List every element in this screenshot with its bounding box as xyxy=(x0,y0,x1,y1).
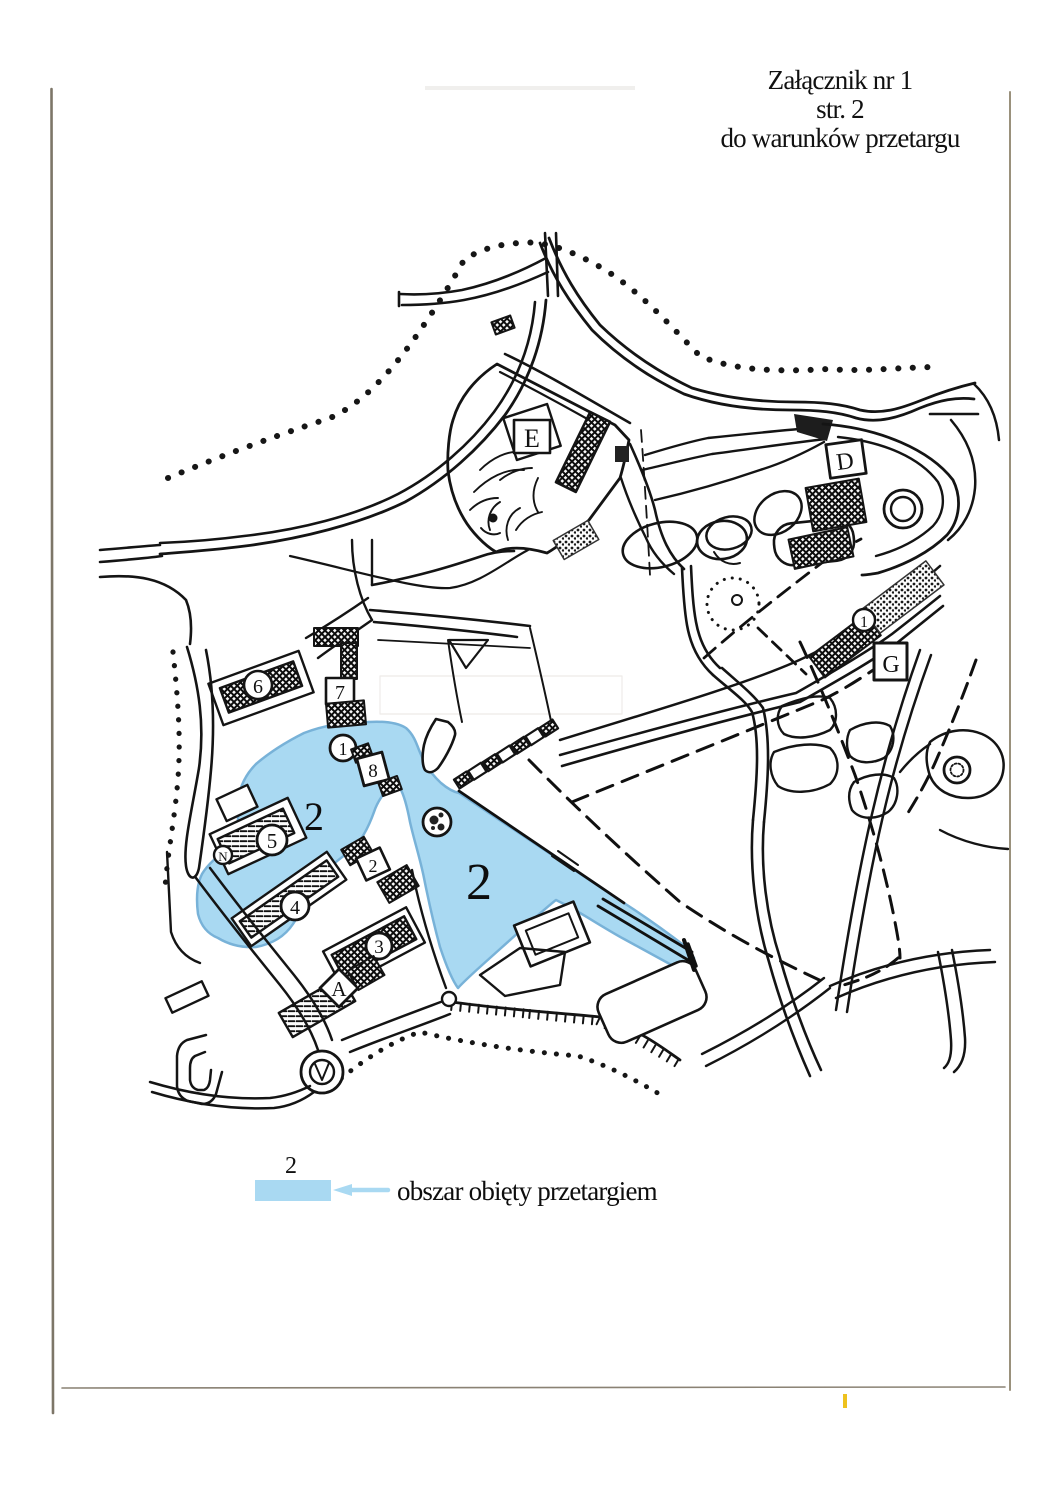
svg-text:G: G xyxy=(882,652,899,678)
svg-text:1: 1 xyxy=(860,614,868,631)
svg-text:4: 4 xyxy=(290,897,300,919)
svg-text:obszar obięty przetargiem: obszar obięty przetargiem xyxy=(397,1176,658,1206)
svg-text:2: 2 xyxy=(304,794,324,839)
svg-text:N: N xyxy=(218,849,228,864)
svg-text:3: 3 xyxy=(374,937,384,958)
svg-text:5: 5 xyxy=(267,829,278,853)
svg-text:7: 7 xyxy=(335,682,345,704)
svg-text:A: A xyxy=(331,977,347,1001)
svg-text:1: 1 xyxy=(339,739,348,759)
svg-text:8: 8 xyxy=(368,761,378,782)
svg-text:2: 2 xyxy=(369,856,378,876)
svg-text:6: 6 xyxy=(253,676,263,698)
svg-text:E: E xyxy=(524,424,540,453)
svg-text:D: D xyxy=(835,448,856,476)
svg-text:2: 2 xyxy=(285,1153,297,1179)
svg-text:2: 2 xyxy=(466,854,492,911)
